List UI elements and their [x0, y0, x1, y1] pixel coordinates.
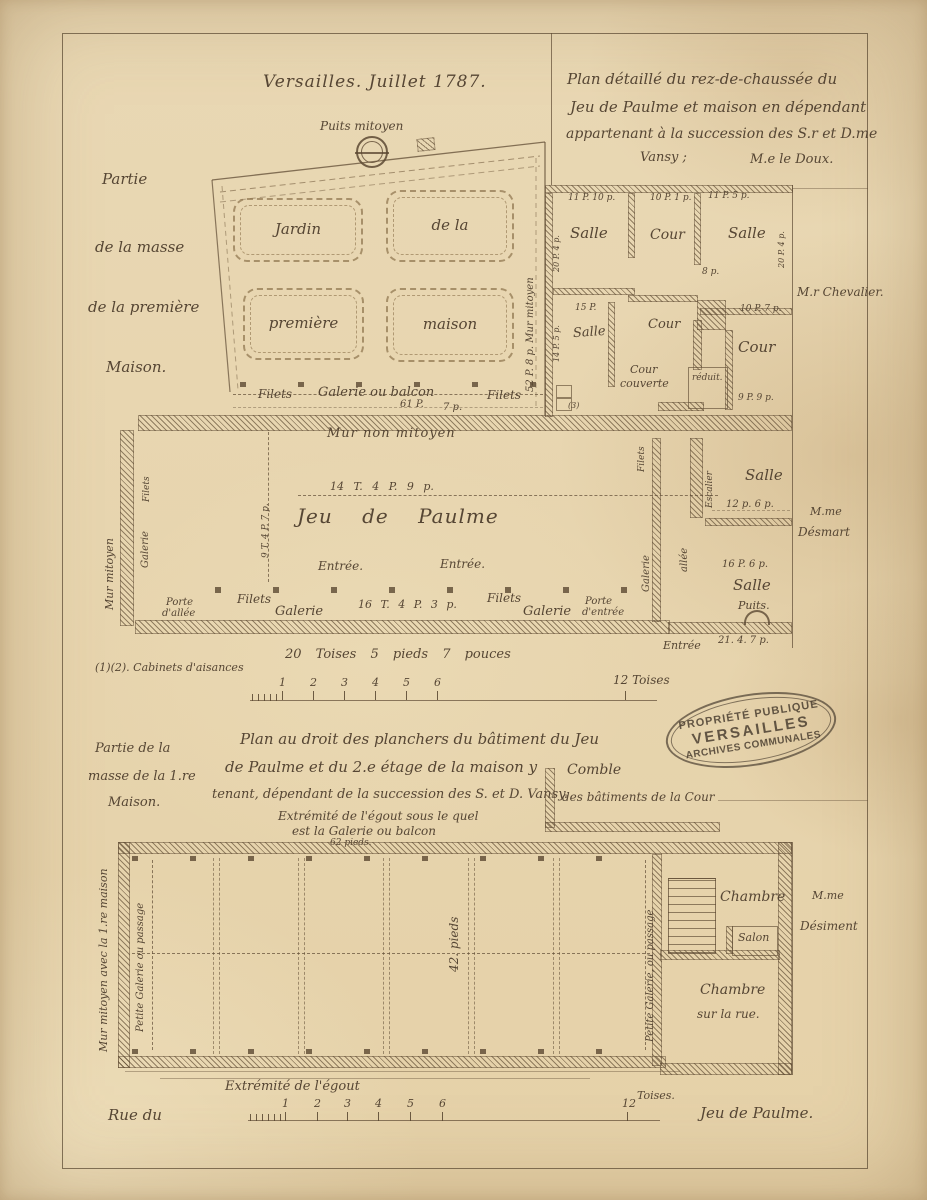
- wing-salle-2: Salle: [733, 578, 771, 594]
- floorplan-galerie-right-vertical: Petite Galerie, ou passage: [646, 910, 657, 1042]
- reduit-label: réduit.: [692, 374, 723, 383]
- left-note-line-1: Partie: [102, 172, 147, 188]
- parterre-label-maison: maison: [423, 317, 477, 333]
- room-chambre-1: Chambre: [720, 890, 785, 905]
- floorplan-posts-bottom: [132, 1049, 650, 1054]
- street-name-right: Jeu de Paulme.: [700, 1106, 813, 1122]
- room-measure-1: 11 P. 10 p.: [568, 194, 615, 203]
- mur-non-mitoyen-label: Mur non mitoyen: [327, 427, 456, 441]
- mid-scale-number-1: 1: [279, 677, 286, 689]
- courtyard-tree-hatch: [697, 300, 726, 330]
- shared-well-symbol: [356, 136, 388, 168]
- house-partition-3: [608, 302, 615, 387]
- mid-scale-tick: [375, 691, 376, 700]
- stamp-line-2: VERSAILLES: [691, 713, 811, 748]
- ceiling-beam: [213, 858, 220, 1054]
- footer-scale-tick: [347, 1112, 348, 1121]
- cour-couverte-1: Cour: [630, 364, 657, 376]
- floorplan-left-wall: [118, 842, 130, 1068]
- room-salle-1: Salle: [570, 226, 608, 242]
- lower-left-line-3: Maison.: [108, 796, 160, 810]
- floorplan-right-edge-line: [792, 842, 793, 1075]
- vertical-measure-right: 20 P. 4 p.: [778, 231, 786, 268]
- mid-scale-tick-12: [625, 691, 626, 700]
- wing-salle-1-measure: 12 p. 6 p.: [726, 500, 774, 511]
- left-note-line-3: de la première: [88, 300, 199, 316]
- parterre-label-de-la: de la: [432, 218, 469, 234]
- floorplan-mur-mitoyen-vertical: Mur mitoyen avec la 1.re maison: [98, 868, 110, 1052]
- closet-3-label: (3): [568, 402, 579, 410]
- porte-entree-2: d'entrée: [582, 608, 624, 619]
- mid-scale-tick: [282, 691, 283, 700]
- wing-mid-wall: [705, 518, 792, 526]
- neighbor-chevalier: M.r Chevalier.: [797, 286, 884, 299]
- gallery-filets-1: Filets: [237, 593, 271, 606]
- mid-scale-tick: [344, 691, 345, 700]
- footer-scale-toises: Toises.: [637, 1090, 675, 1102]
- ceiling-beam: [298, 858, 305, 1054]
- title-line-1: Plan détaillé du rez-de-chaussée du: [567, 72, 837, 88]
- footer-scale-number-1: 1: [282, 1098, 289, 1110]
- wing-puits-label: Puits.: [738, 600, 770, 612]
- neighbor-desiment-title: M.me: [812, 890, 844, 902]
- lower-left-line-2: masse de la 1.re: [88, 770, 196, 784]
- mid-scale-number-2: 2: [310, 677, 317, 689]
- parterre-label-jardin: Jardin: [275, 222, 321, 238]
- house-partition-1: [628, 193, 635, 258]
- left-corridor-line: [152, 860, 153, 1050]
- hall-left-wall: [120, 430, 134, 626]
- comble-wall-vertical: [545, 768, 555, 828]
- mid-scale-end-label: 12 Toises: [613, 674, 670, 687]
- room-cour-2: Cour: [648, 318, 680, 332]
- place-date: Versailles. Juillet 1787.: [263, 74, 487, 92]
- comble-wall-horizontal: [545, 822, 720, 832]
- room-measure-15p: 15 P.: [575, 304, 596, 313]
- parterre-label-premiere: première: [269, 316, 339, 332]
- lower-left-line-1: Partie de la: [95, 742, 170, 756]
- footer-scale-tick: [442, 1112, 443, 1121]
- wing-salle-1: Salle: [745, 468, 783, 484]
- mid-scale-number-3: 3: [341, 677, 348, 689]
- cabinets-note: (1)(2). Cabinets d'aisances: [95, 662, 244, 674]
- title-line-3: appartenant à la succession des S.r et D…: [566, 127, 877, 142]
- footer-scale-tick: [317, 1112, 318, 1121]
- well-label: Puits mitoyen: [320, 120, 403, 133]
- hall-top-wall: [138, 415, 792, 431]
- footer-scale-tick-12: [627, 1112, 628, 1121]
- floorplan-galerie-left-vertical: Petite Galerie ou passage: [136, 903, 147, 1032]
- egout-label: Extrémité de l'égout: [225, 1080, 360, 1094]
- neighbor-desmart-name: Désmart: [798, 526, 850, 539]
- floorplan-bottom-wall: [118, 1056, 666, 1068]
- room-chambre-2: Chambre: [700, 983, 765, 998]
- ceiling-beam: [383, 858, 390, 1054]
- ceiling-beam: [553, 858, 560, 1054]
- gallery-galerie-1: Galerie: [275, 605, 323, 619]
- neighbor-desiment-name: Désiment: [800, 920, 858, 933]
- room-measure-2: 10 P. 1 p.: [650, 194, 691, 203]
- garden-parterre-2: de la: [386, 190, 514, 262]
- mid-scale-number-6: 6: [434, 677, 441, 689]
- title-line-2: Jeu de Paulme et maison en dépendant: [570, 100, 866, 116]
- hall-gallery-posts: [215, 587, 655, 593]
- filets-left-label: Filets: [258, 388, 292, 401]
- hall-galerie-vertical: Galerie: [141, 531, 152, 568]
- hall-measure-label: 14 T. 4 P. 9 p.: [330, 481, 434, 493]
- porte-allee-1: Porte: [166, 598, 193, 609]
- lower-title-line-3: tenant, dépendant de la succession des S…: [212, 788, 568, 802]
- mid-scale-number-5: 5: [403, 677, 410, 689]
- floorplan-center-line: [132, 953, 650, 954]
- footer-scale-number-6: 6: [439, 1098, 446, 1110]
- floorplan-top-wall: [118, 842, 792, 854]
- hall-vertical-measure: 9 T. 4 P. 7 p.: [262, 503, 271, 558]
- measure-9p9: 9 P. 9 p.: [738, 394, 774, 403]
- room-measure-3: 11 P. 5 p.: [708, 192, 749, 201]
- mid-scale-tick: [437, 691, 438, 700]
- measure-7p: 7 p.: [443, 403, 462, 414]
- hall-measure-line: [298, 495, 718, 496]
- wing-salle-2-measure: 16 P. 6 p.: [722, 560, 768, 571]
- wing-entree-label: Entrée: [663, 640, 701, 652]
- footer-scale-number-3: 3: [344, 1098, 351, 1110]
- comble-label-1: Comble: [567, 763, 621, 778]
- wall-hatch-block: [416, 137, 435, 152]
- footer-scale-number-4: 4: [375, 1098, 382, 1110]
- garden-parterre-3: première: [243, 288, 364, 360]
- gallery-measure: 16 T. 4 P. 3 p.: [358, 599, 457, 611]
- footer-scale-number-5: 5: [407, 1098, 414, 1110]
- house-right-edge-line: [792, 185, 793, 648]
- comble-extension-line: [718, 800, 868, 801]
- cour-couverte-2: couverte: [620, 378, 669, 390]
- frame-extension-line-top: [792, 188, 868, 189]
- house-mid-wall-a: [553, 288, 635, 295]
- wing-divider-wall: [652, 438, 661, 622]
- neighbor-desmart-title: M.me: [810, 506, 842, 518]
- garden-parterre-4: maison: [386, 288, 514, 362]
- lower-title-line-4: Extrémité de l'égout sous le quel: [278, 810, 478, 823]
- left-note-line-2: de la masse: [95, 240, 184, 256]
- wing-right-wall: [778, 842, 792, 1075]
- garden-parterre-1: Jardin: [233, 198, 363, 262]
- lower-title-line-5: est la Galerie ou balcon: [292, 825, 436, 838]
- footer-scale-tick: [410, 1112, 411, 1121]
- left-note-line-4: Maison.: [106, 360, 166, 376]
- scanned-plan-page: Versailles. Juillet 1787. Plan détaillé …: [0, 0, 927, 1200]
- measure-8p: 8 p.: [702, 268, 719, 277]
- mid-scale-subdivisions: [252, 694, 282, 701]
- gallery-filets-2: Filets: [487, 592, 521, 605]
- porte-entree-1: Porte: [585, 597, 612, 608]
- measure-61p: 61 P.: [400, 400, 424, 411]
- wing-measure-2147: 21. 4. 7 p.: [718, 636, 769, 647]
- hall-entree-2: Entrée.: [440, 558, 485, 571]
- hall-name-label: Jeu de Paulme: [297, 506, 499, 527]
- hall-bottom-wall: [135, 620, 670, 634]
- title-author: M.e le Doux.: [750, 153, 833, 167]
- footer-scale-number-2: 2: [314, 1098, 321, 1110]
- vertical-measure-14p5: 14 P. 5 p.: [553, 325, 561, 362]
- mid-scale-tick: [406, 691, 407, 700]
- salon-side-wall: [726, 926, 733, 954]
- lower-title-line-2: de Paulme et du 2.e étage de la maison y: [225, 760, 537, 776]
- wing-bottom-wall-2: [660, 1063, 792, 1075]
- gallery-galerie-2: Galerie: [523, 605, 571, 619]
- hall-mur-mitoyen-label: Mur mitoyen: [104, 538, 116, 610]
- lower-title-line-1: Plan au droit des planchers du bâtiment …: [240, 732, 599, 748]
- footer-scale-tick: [378, 1112, 379, 1121]
- footer-scale-tick: [285, 1112, 286, 1121]
- staircase: [668, 878, 716, 954]
- length-note: 20 Toises 5 pieds 7 pouces: [285, 648, 511, 662]
- mid-scale-tick: [313, 691, 314, 700]
- garden-party-wall-label: 52 P. 8 p. Mur mitoyen: [526, 277, 537, 392]
- wing-stair-block: [690, 438, 703, 518]
- footer-scale-number-12: 12: [622, 1098, 636, 1110]
- egout-bracket-line: [125, 1071, 680, 1072]
- room-salle-2: Salle: [728, 226, 766, 242]
- room-salle-3: Salle: [573, 325, 607, 341]
- porte-allee-2: d'allée: [162, 609, 195, 620]
- room-cour-1: Cour: [650, 228, 685, 243]
- room-chambre-2-sub: sur la rue.: [697, 1008, 760, 1021]
- gallery-dashed-line-2: [233, 407, 543, 408]
- filets-right-label: Filets: [487, 389, 521, 402]
- footer-scale-subdivisions: [250, 1114, 283, 1121]
- wing-escalier-vertical: Escalier: [706, 471, 715, 508]
- mid-scale-baseline: [250, 700, 657, 701]
- house-partition-2: [694, 193, 701, 265]
- room-measure-10p7: 10 P. 7 p.: [740, 305, 781, 314]
- room-salon: Salon: [738, 932, 769, 944]
- footer-scale-baseline: [248, 1120, 660, 1121]
- title-line-4: Vansy ;: [640, 151, 687, 165]
- closet-1-outline: [556, 385, 572, 398]
- ceiling-beam: [468, 858, 475, 1054]
- wing-filets-vertical: Filets: [638, 446, 647, 472]
- wing-galerie-vertical: Galerie: [642, 555, 653, 592]
- comble-label-2: des bâtiments de la Cour: [562, 791, 715, 804]
- room-cour-3: Cour: [738, 340, 775, 356]
- house-mid-wall-b: [628, 295, 698, 302]
- mid-scale-number-4: 4: [372, 677, 379, 689]
- street-name-left: Rue du: [108, 1108, 162, 1124]
- vertical-measure-left: 20 P. 4 p.: [553, 235, 561, 272]
- hall-filets-vertical: Filets: [143, 476, 152, 502]
- galerie-balcon-label: Galerie ou balcon: [318, 386, 434, 400]
- hall-entree-1: Entrée.: [318, 560, 363, 573]
- wing-bottom-wall: [668, 622, 792, 634]
- house-top-wall: [545, 185, 793, 193]
- wing-allee-vertical: allée: [680, 548, 691, 572]
- floorplan-42-pieds-vertical: 42. pieds: [448, 917, 461, 972]
- floorplan-posts-top: [132, 856, 650, 861]
- house-left-wall: [545, 193, 553, 417]
